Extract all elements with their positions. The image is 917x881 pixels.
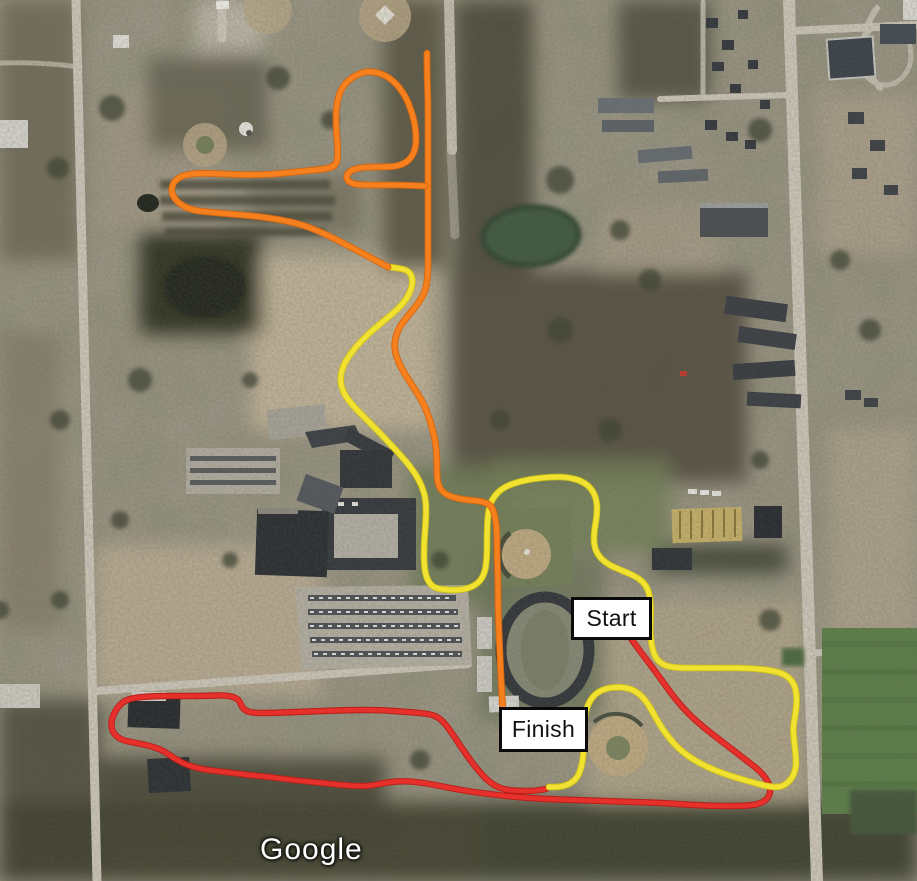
start-label-text: Start — [586, 605, 636, 632]
map-image — [0, 0, 917, 881]
satellite-map: Start Finish Google — [0, 0, 917, 881]
finish-label: Finish — [499, 707, 588, 752]
google-watermark: Google — [260, 833, 363, 867]
start-label: Start — [571, 597, 652, 640]
finish-label-text: Finish — [512, 716, 575, 743]
